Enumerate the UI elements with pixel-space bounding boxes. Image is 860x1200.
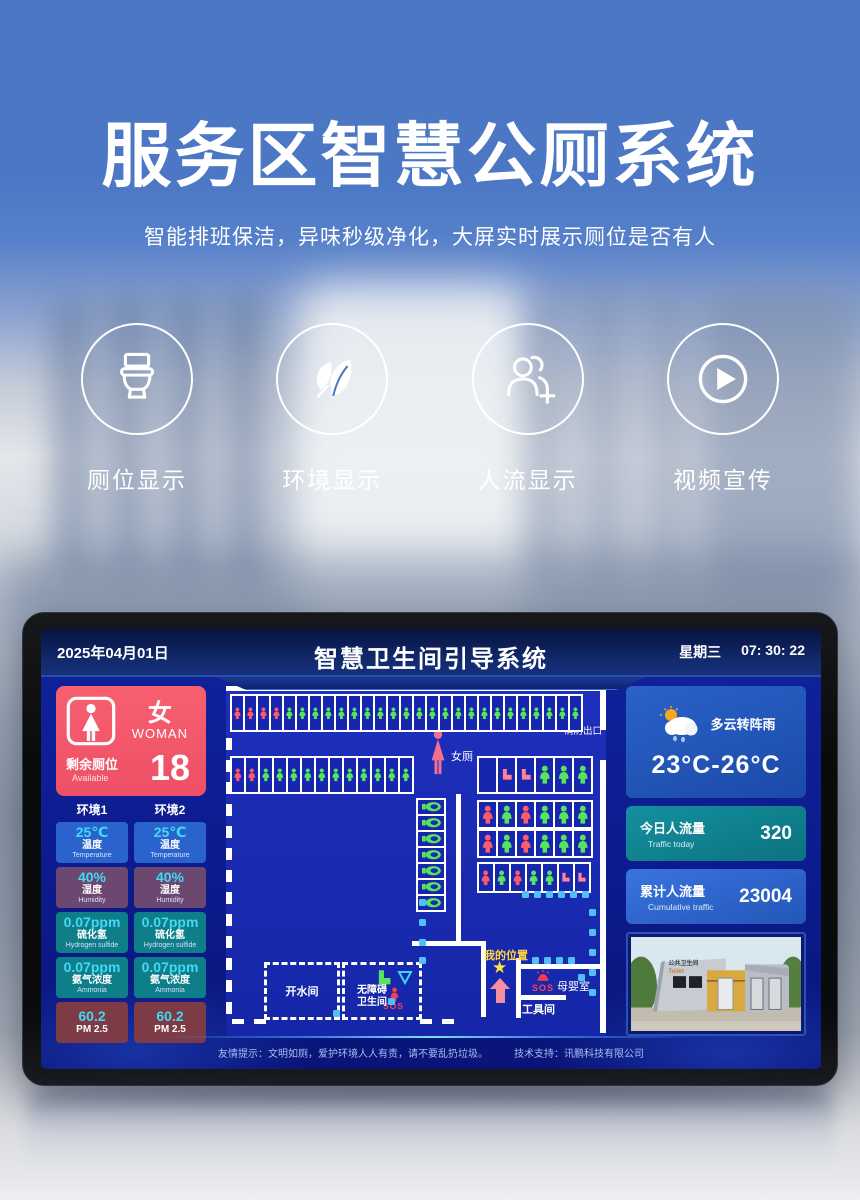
corridor-light <box>589 929 596 936</box>
woman-icon <box>66 696 116 746</box>
feature-environment-display: 环境显示 <box>257 323 407 495</box>
stall-cell-occupied <box>517 831 534 856</box>
stall-cell-vacant <box>302 758 314 792</box>
stall-cell-occupied <box>479 802 496 827</box>
corridor-light <box>388 998 395 1005</box>
weekday-text: 星期三 <box>679 642 721 662</box>
stall-cell-vacant <box>336 696 347 730</box>
metric-tile-env1-2: 0.07ppm硫化氢Hydrogen sulfide <box>56 912 128 953</box>
stall-cell-vacant <box>288 758 300 792</box>
stall-cell-urinal <box>418 880 444 894</box>
corridor-light <box>333 1010 340 1017</box>
stall-cell-vacant <box>375 696 386 730</box>
stall-cell-occupied <box>479 864 493 891</box>
corridor-light <box>568 957 575 964</box>
feature-label: 环境显示 <box>257 461 407 495</box>
corridor-light <box>558 891 565 898</box>
stall-cell-vacant <box>401 696 412 730</box>
stall-cell-vacant <box>531 696 542 730</box>
today-traffic-label-en: Traffic today <box>648 839 705 849</box>
accessible-sign-icon <box>397 970 413 985</box>
map-corridor-wall <box>516 964 600 969</box>
feature-video-display: 视频宣传 <box>648 323 798 495</box>
stall-cell-vacant <box>495 864 509 891</box>
page-subtitle: 智能排班保洁，异味秒级净化，大屏实时展示厕位是否有人 <box>0 221 860 251</box>
env2-header: 环境2 <box>134 801 206 818</box>
corridor-light <box>544 957 551 964</box>
stall-cell-vacant <box>427 696 438 730</box>
date-text: 2025年04月01日 <box>57 642 169 663</box>
stall-cell-occupied <box>517 802 534 827</box>
stall-cell-vacant <box>414 696 425 730</box>
stall-cell-vacant <box>386 758 398 792</box>
screen-footer: 友情提示：文明如厕，爱护环境人人有责，请不要乱扔垃圾。 技术支持：讯鹏科技有限公… <box>41 1036 821 1069</box>
corridor-light <box>589 989 596 996</box>
stall-row-top <box>230 694 583 732</box>
corridor-light <box>589 969 596 976</box>
stall-row-rowD <box>477 862 591 893</box>
feature-stall-display: 厕位显示 <box>62 323 212 495</box>
corridor-light <box>578 974 585 981</box>
time-text: 07: 30: 22 <box>741 642 805 662</box>
leaf-icon <box>276 323 388 435</box>
corridor-light <box>589 949 596 956</box>
feature-list: 厕位显示 环境显示 <box>0 323 860 495</box>
weather-temp-range: 23°C-26°C <box>651 751 780 780</box>
stall-cell-vacant <box>466 696 477 730</box>
stall-cell-vacant <box>536 831 553 856</box>
stall-cell-vacant <box>284 696 295 730</box>
corridor-light <box>546 891 553 898</box>
remaining-label-en: Available <box>72 773 118 783</box>
map-corridor-wall <box>456 794 461 946</box>
env1-header: 环境1 <box>56 801 128 818</box>
stall-cell-vacant <box>555 831 572 856</box>
left-panel: 女 WOMAN 剩余厕位 Available 18 环境1 环境2 <box>56 686 206 1043</box>
toilet-building-photo: 公共卫生间 Toilet <box>631 937 801 1031</box>
stall-cell-vacant <box>316 758 328 792</box>
corridor-light <box>419 919 426 926</box>
stall-cell-occupied <box>232 696 243 730</box>
feature-label: 厕位显示 <box>62 461 212 495</box>
screen-title: 智慧卫生间引导系统 <box>314 639 548 674</box>
stall-cell-vacant <box>492 696 503 730</box>
stall-cell-squat <box>517 758 534 792</box>
stall-cell-vacant <box>453 696 464 730</box>
toilet-icon <box>81 323 193 435</box>
stall-cell-vacant <box>274 758 286 792</box>
women-area-label: 女厕 <box>451 748 473 764</box>
clock-group: 星期三 07: 30: 22 <box>679 642 805 662</box>
hot-water-room: 开水间 <box>264 962 340 1020</box>
display-monitor: 2025年04月01日 智慧卫生间引导系统 星期三 07: 30: 22 <box>22 612 838 1086</box>
stall-cell-vacant <box>557 696 568 730</box>
corridor-light <box>419 939 426 946</box>
stall-cell-urinal <box>418 800 444 814</box>
metric-tile-env2-1: 40%湿度Humidity <box>134 867 206 908</box>
stall-cell-vacant <box>574 802 591 827</box>
women-availability-card: 女 WOMAN 剩余厕位 Available 18 <box>56 686 206 796</box>
corridor-light <box>534 891 541 898</box>
direction-arrow-icon <box>490 978 510 1003</box>
stall-cell-vacant <box>536 802 553 827</box>
stall-cell-vacant <box>440 696 451 730</box>
cumulative-traffic-label-cn: 累计人流量 <box>640 881 714 900</box>
gender-en: WOMAN <box>132 726 188 741</box>
environment-headers: 环境1 环境2 <box>56 801 206 818</box>
woman-figure-icon <box>428 730 448 776</box>
environment-metrics-grid: 25℃温度Temperature25℃温度Temperature40%湿度Hum… <box>56 822 206 1043</box>
today-traffic-value: 320 <box>760 823 792 845</box>
cumulative-traffic-value: 23004 <box>739 886 792 908</box>
accessible-label-line1: 无障碍 <box>357 985 387 997</box>
stall-cell-urinal <box>418 848 444 862</box>
map-wall <box>600 760 606 1033</box>
stall-cell-vacant <box>260 758 272 792</box>
mother-baby-sos-label: SOS <box>532 983 554 993</box>
metric-tile-env1-0: 25℃温度Temperature <box>56 822 128 863</box>
stall-cell-occupied <box>479 831 496 856</box>
page-title: 服务区智慧公厕系统 <box>0 118 860 195</box>
today-traffic-card: 今日人流量 Traffic today 320 <box>626 806 806 861</box>
weather-card: 多云转阵雨 23°C-26°C <box>626 686 806 798</box>
hero-section: 服务区智慧公厕系统 智能排班保洁，异味秒级净化，大屏实时展示厕位是否有人 厕位显… <box>0 0 860 495</box>
stall-cell-vacant <box>555 802 572 827</box>
stall-row-block2 <box>477 829 593 858</box>
remaining-count: 18 <box>150 750 190 786</box>
stall-cell-squat <box>559 864 573 891</box>
accessible-toilet-room: 无障碍 卫生间 SOS <box>342 962 422 1020</box>
stall-cell-occupied <box>511 864 525 891</box>
corridor-light <box>419 899 426 906</box>
stall-cell-vacant <box>570 696 581 730</box>
stall-cell-vacant <box>310 696 321 730</box>
stall-cell-vacant <box>297 696 308 730</box>
stall-cell-vacant <box>498 802 515 827</box>
stall-cell-vacant <box>400 758 412 792</box>
tool-room-label: 工具间 <box>522 1001 555 1017</box>
feature-label: 人流显示 <box>453 461 603 495</box>
stall-cell-occupied <box>245 696 256 730</box>
footer-tip: 友情提示：文明如厕，爱护环境人人有责，请不要乱扔垃圾。 <box>218 1045 488 1060</box>
metric-tile-env2-0: 25℃温度Temperature <box>134 822 206 863</box>
corridor-light <box>582 891 589 898</box>
stall-cell-vacant <box>323 696 334 730</box>
stall-cell-vacant <box>518 696 529 730</box>
accessible-label-line2: 卫生间 <box>357 997 387 1009</box>
guidance-screen: 2025年04月01日 智慧卫生间引导系统 星期三 07: 30: 22 <box>41 629 821 1069</box>
weather-desc: 多云转阵雨 <box>710 714 775 733</box>
stall-cell-vacant <box>555 758 572 792</box>
feature-traffic-display: 人流显示 <box>453 323 603 495</box>
stall-cell-occupied <box>232 758 244 792</box>
stall-cell-vacant <box>479 696 490 730</box>
floor-map: 开水间 无障碍 卫生间 <box>226 686 606 1036</box>
stall-cell-vacant <box>543 864 557 891</box>
cumulative-traffic-card: 累计人流量 Cumulative traffic 23004 <box>626 869 806 924</box>
stall-cell-vacant <box>349 696 360 730</box>
floor-reflection <box>26 1092 834 1192</box>
corridor-light <box>589 909 596 916</box>
stall-cell-occupied <box>271 696 282 730</box>
feature-label: 视频宣传 <box>648 461 798 495</box>
map-wall-dashed <box>232 1019 266 1024</box>
toilet-photo-card: 公共卫生间 Toilet <box>626 932 806 1036</box>
hot-water-label: 开水间 <box>286 983 319 999</box>
stall-cell-vacant <box>372 758 384 792</box>
stall-cell-vacant <box>358 758 370 792</box>
stall-cell-vacant <box>544 696 555 730</box>
today-traffic-label-cn: 今日人流量 <box>640 818 705 837</box>
map-wall-dashed <box>420 1019 460 1024</box>
corridor-light <box>570 891 577 898</box>
stall-cell-vacant <box>498 831 515 856</box>
footer-support: 技术支持：讯鹏科技有限公司 <box>514 1045 644 1060</box>
play-icon <box>667 323 779 435</box>
stall-cell-vacant <box>574 831 591 856</box>
stall-row-row2 <box>230 756 414 794</box>
stall-cell-vacant <box>527 864 541 891</box>
stall-row-urinals <box>416 798 446 912</box>
corridor-light <box>419 957 426 964</box>
stall-cell-vacant <box>362 696 373 730</box>
stall-cell-vacant <box>330 758 342 792</box>
photo-caption: 公共卫生间 Toilet <box>668 961 698 977</box>
stall-cell-squat <box>498 758 515 792</box>
stall-cell-urinal <box>418 832 444 846</box>
stall-cell-occupied <box>246 758 258 792</box>
map-corridor-wall <box>516 995 566 1000</box>
people-plus-icon <box>472 323 584 435</box>
corridor-light <box>532 957 539 964</box>
remaining-label-cn: 剩余厕位 <box>66 754 118 773</box>
screen-header: 2025年04月01日 智慧卫生间引导系统 星期三 07: 30: 22 <box>41 629 821 677</box>
metric-tile-env1-3: 0.07ppm氨气浓度Ammonia <box>56 957 128 998</box>
corridor-light <box>556 957 563 964</box>
stall-cell-urinal <box>418 816 444 830</box>
stall-row-rowA <box>477 756 593 794</box>
my-location-star-icon: ★ <box>492 959 507 976</box>
sos-alarm-icon <box>534 969 552 982</box>
gender-cn: 女 <box>132 702 188 726</box>
stall-cell-empty <box>479 758 496 792</box>
corridor-light <box>522 891 529 898</box>
mother-baby-label: 母婴室 <box>557 978 590 994</box>
stall-cell-vacant <box>388 696 399 730</box>
stall-cell-vacant <box>536 758 553 792</box>
stall-cell-vacant <box>574 758 591 792</box>
stall-cell-vacant <box>505 696 516 730</box>
header-trapezoid <box>216 677 646 690</box>
cumulative-traffic-label-en: Cumulative traffic <box>648 902 714 912</box>
metric-tile-env1-1: 40%湿度Humidity <box>56 867 128 908</box>
metric-tile-env2-2: 0.07ppm硫化氢Hydrogen sulfide <box>134 912 206 953</box>
stall-cell-urinal <box>418 864 444 878</box>
stall-cell-squat <box>575 864 589 891</box>
weather-icon <box>656 705 702 743</box>
metric-tile-env2-3: 0.07ppm氨气浓度Ammonia <box>134 957 206 998</box>
stall-cell-occupied <box>258 696 269 730</box>
page: 服务区智慧公厕系统 智能排班保洁，异味秒级净化，大屏实时展示厕位是否有人 厕位显… <box>0 0 860 1200</box>
stall-row-block1 <box>477 800 593 829</box>
stall-cell-vacant <box>344 758 356 792</box>
